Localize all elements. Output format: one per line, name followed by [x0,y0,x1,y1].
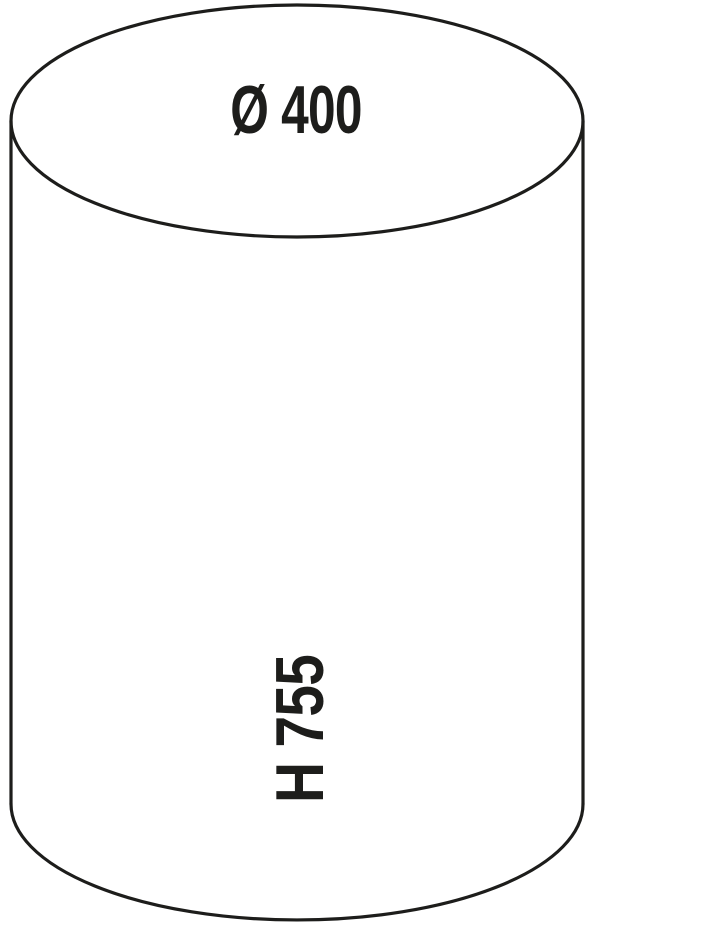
diameter-dimension-label: Ø 400 [230,76,362,144]
height-dimension-label: H 755 [266,655,334,803]
cylinder-bottom-arc [11,804,583,920]
product-dimension-drawing: Ø 400 H 755 [0,0,720,929]
